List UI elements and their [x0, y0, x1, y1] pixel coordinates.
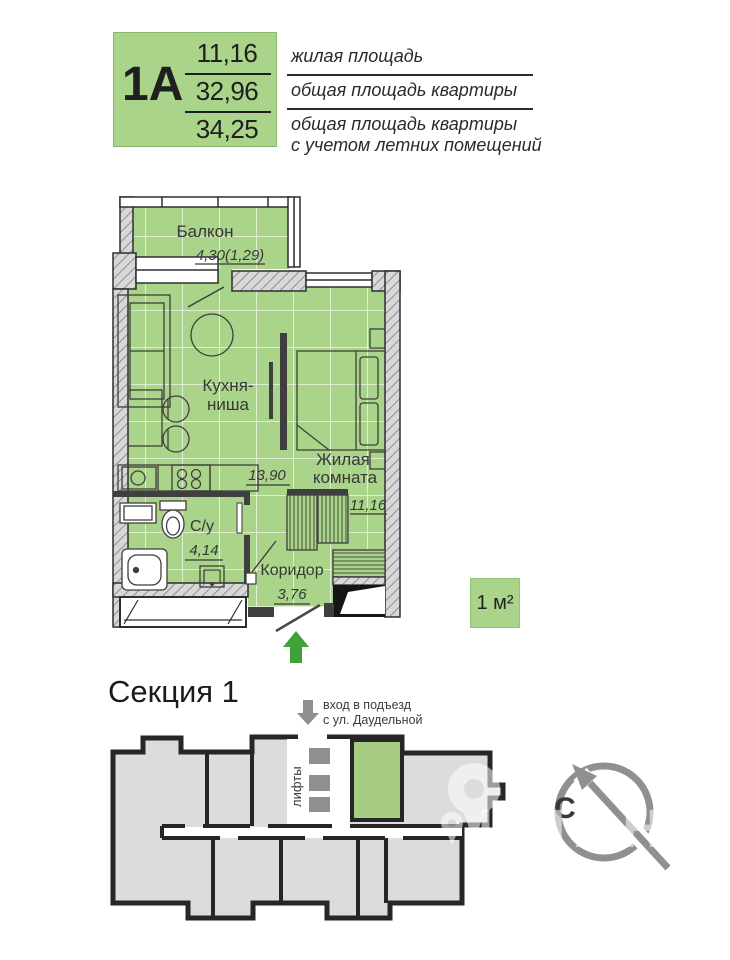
total-area-label: общая площадь квартиры [291, 80, 517, 101]
corridor-area: 3,76 [277, 586, 307, 603]
elevators [309, 748, 330, 812]
corridor-cabinet [333, 550, 385, 577]
bathroom-area: 4,14 [189, 542, 218, 559]
fraction-line [185, 111, 271, 113]
door-jamb [319, 607, 323, 617]
bathtub [122, 549, 167, 590]
entrance-wall-right [324, 603, 334, 617]
entrance-door-leaf [276, 605, 320, 631]
wardrobe-back-wall [287, 489, 348, 495]
toilet [160, 501, 186, 538]
kitchen-label-line2: ниша [207, 395, 250, 414]
unit-label: 1А [122, 57, 183, 112]
highlighted-apartment [352, 740, 402, 820]
top-left-corner-wall [113, 253, 136, 289]
scale-legend-label: 1 м² [476, 592, 513, 614]
door-jamb [274, 607, 278, 617]
living-area-value: 11,16 [184, 38, 270, 69]
bathroom-corridor-wall [244, 491, 250, 505]
partition-panel [280, 333, 287, 450]
compass-north-label: С [554, 792, 576, 825]
floorplan-page: 1А 11,16 32,96 34,25 жилая площадь общая… [0, 0, 730, 960]
livingroom-label-line1: Жилая [316, 450, 370, 469]
kitchen-label-line1: Кухня- [202, 376, 253, 395]
tv-panel [269, 362, 273, 419]
corridor-wardrobe [318, 495, 348, 543]
summer-label-line1: общая площадь квартиры [291, 114, 517, 134]
balcony-door-opening [218, 269, 232, 291]
unit-badge: 1А 11,16 32,96 34,25 [113, 32, 277, 147]
shaft-wall [333, 577, 385, 585]
livingroom-label-line2: комната [313, 468, 378, 487]
corridor-label: Коридор [260, 562, 323, 579]
bathroom-door-leaf [237, 503, 242, 533]
building-entrance-arrow [297, 700, 319, 725]
balcony-railing [120, 197, 290, 207]
scale-legend: 1 м² [470, 578, 520, 628]
apartment-floorplan: Балкон 4,30(1,29) Кухня- ниша 13,90 Жила… [100, 183, 420, 683]
fraction-line [185, 73, 271, 75]
building-section-plan: лифты [100, 695, 510, 925]
legend-separator [287, 74, 533, 76]
corridor-wardrobe [287, 495, 317, 550]
total-summer-area-label: общая площадь квартиры с учетом летних п… [291, 114, 542, 156]
entrance-arrow [283, 631, 309, 663]
utility-shaft [333, 585, 385, 617]
legend-separator [287, 108, 533, 110]
right-wall [385, 271, 400, 617]
kitchen-bathroom-wall [113, 491, 250, 497]
balcony-label: Балкон [176, 222, 233, 241]
total-area-value: 32,96 [184, 76, 270, 107]
summer-label-line2: с учетом летних помещений [291, 135, 542, 155]
bottom-window-bay [120, 597, 246, 627]
compass: С [530, 748, 690, 883]
bathroom-label: С/у [190, 518, 214, 535]
elevators-label: лифты [289, 766, 304, 807]
total-summer-area-value: 34,25 [184, 114, 270, 145]
top-wall-lintel [232, 271, 306, 291]
living-area-label: жилая площадь [291, 46, 423, 67]
entrance-wall-left [248, 607, 274, 617]
lobby-entrance-gap [298, 733, 327, 742]
kitchen-area: 13,90 [248, 467, 286, 484]
washbasin [120, 503, 156, 523]
livingroom-area: 11,16 [350, 497, 387, 514]
balcony-area: 4,30(1,29) [196, 247, 264, 264]
